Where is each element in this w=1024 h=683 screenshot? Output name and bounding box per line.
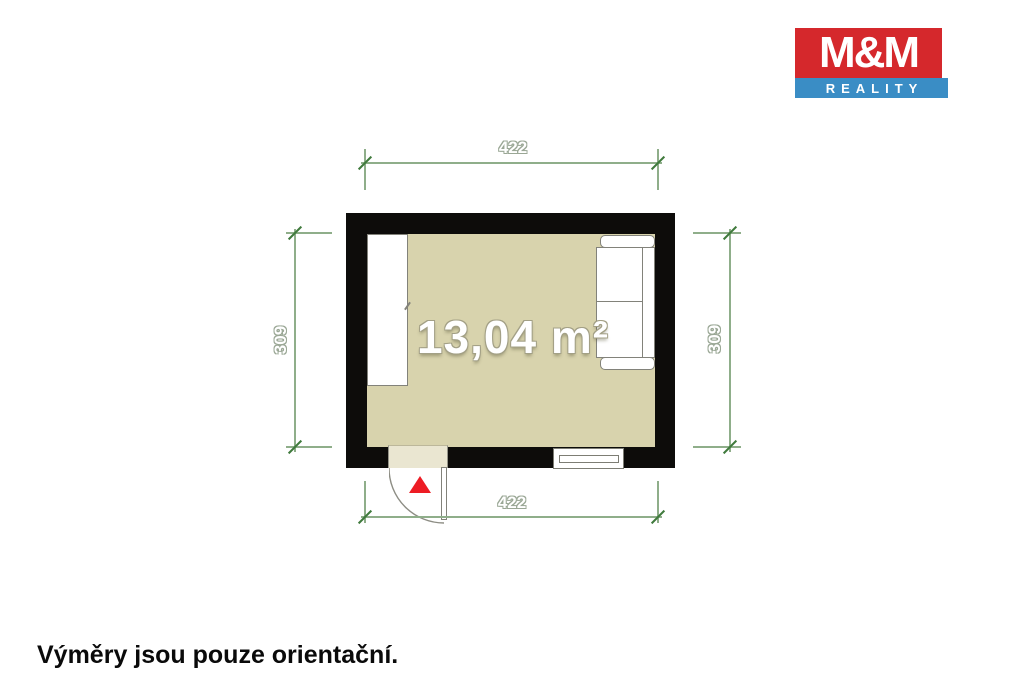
extension-line	[693, 446, 741, 448]
dimension-line	[294, 229, 296, 452]
dimension-label-right: 309	[705, 318, 725, 360]
floorplan-page: M&M REALITY 13,04 m² 422 422	[0, 0, 1024, 683]
dimension-line	[729, 229, 731, 452]
extension-line	[364, 149, 366, 190]
dimension-label-top: 422	[489, 138, 537, 158]
door-opening	[388, 445, 448, 468]
extension-line	[657, 149, 659, 190]
room-area-label: 13,04 m²	[369, 230, 657, 443]
dimension-label-left: 309	[271, 319, 291, 361]
entrance-arrow-icon	[409, 476, 431, 493]
door-leaf	[441, 467, 447, 520]
logo-reality-banner: REALITY	[795, 78, 948, 98]
extension-line	[693, 232, 741, 234]
dimension-label-bottom: 422	[488, 493, 536, 513]
logo-mm-text: M&M	[795, 28, 942, 78]
dimension-line	[361, 516, 662, 518]
dimension-line	[361, 162, 662, 164]
disclaimer-text: Výměry jsou pouze orientační.	[37, 641, 398, 670]
window-glazing	[559, 455, 619, 463]
